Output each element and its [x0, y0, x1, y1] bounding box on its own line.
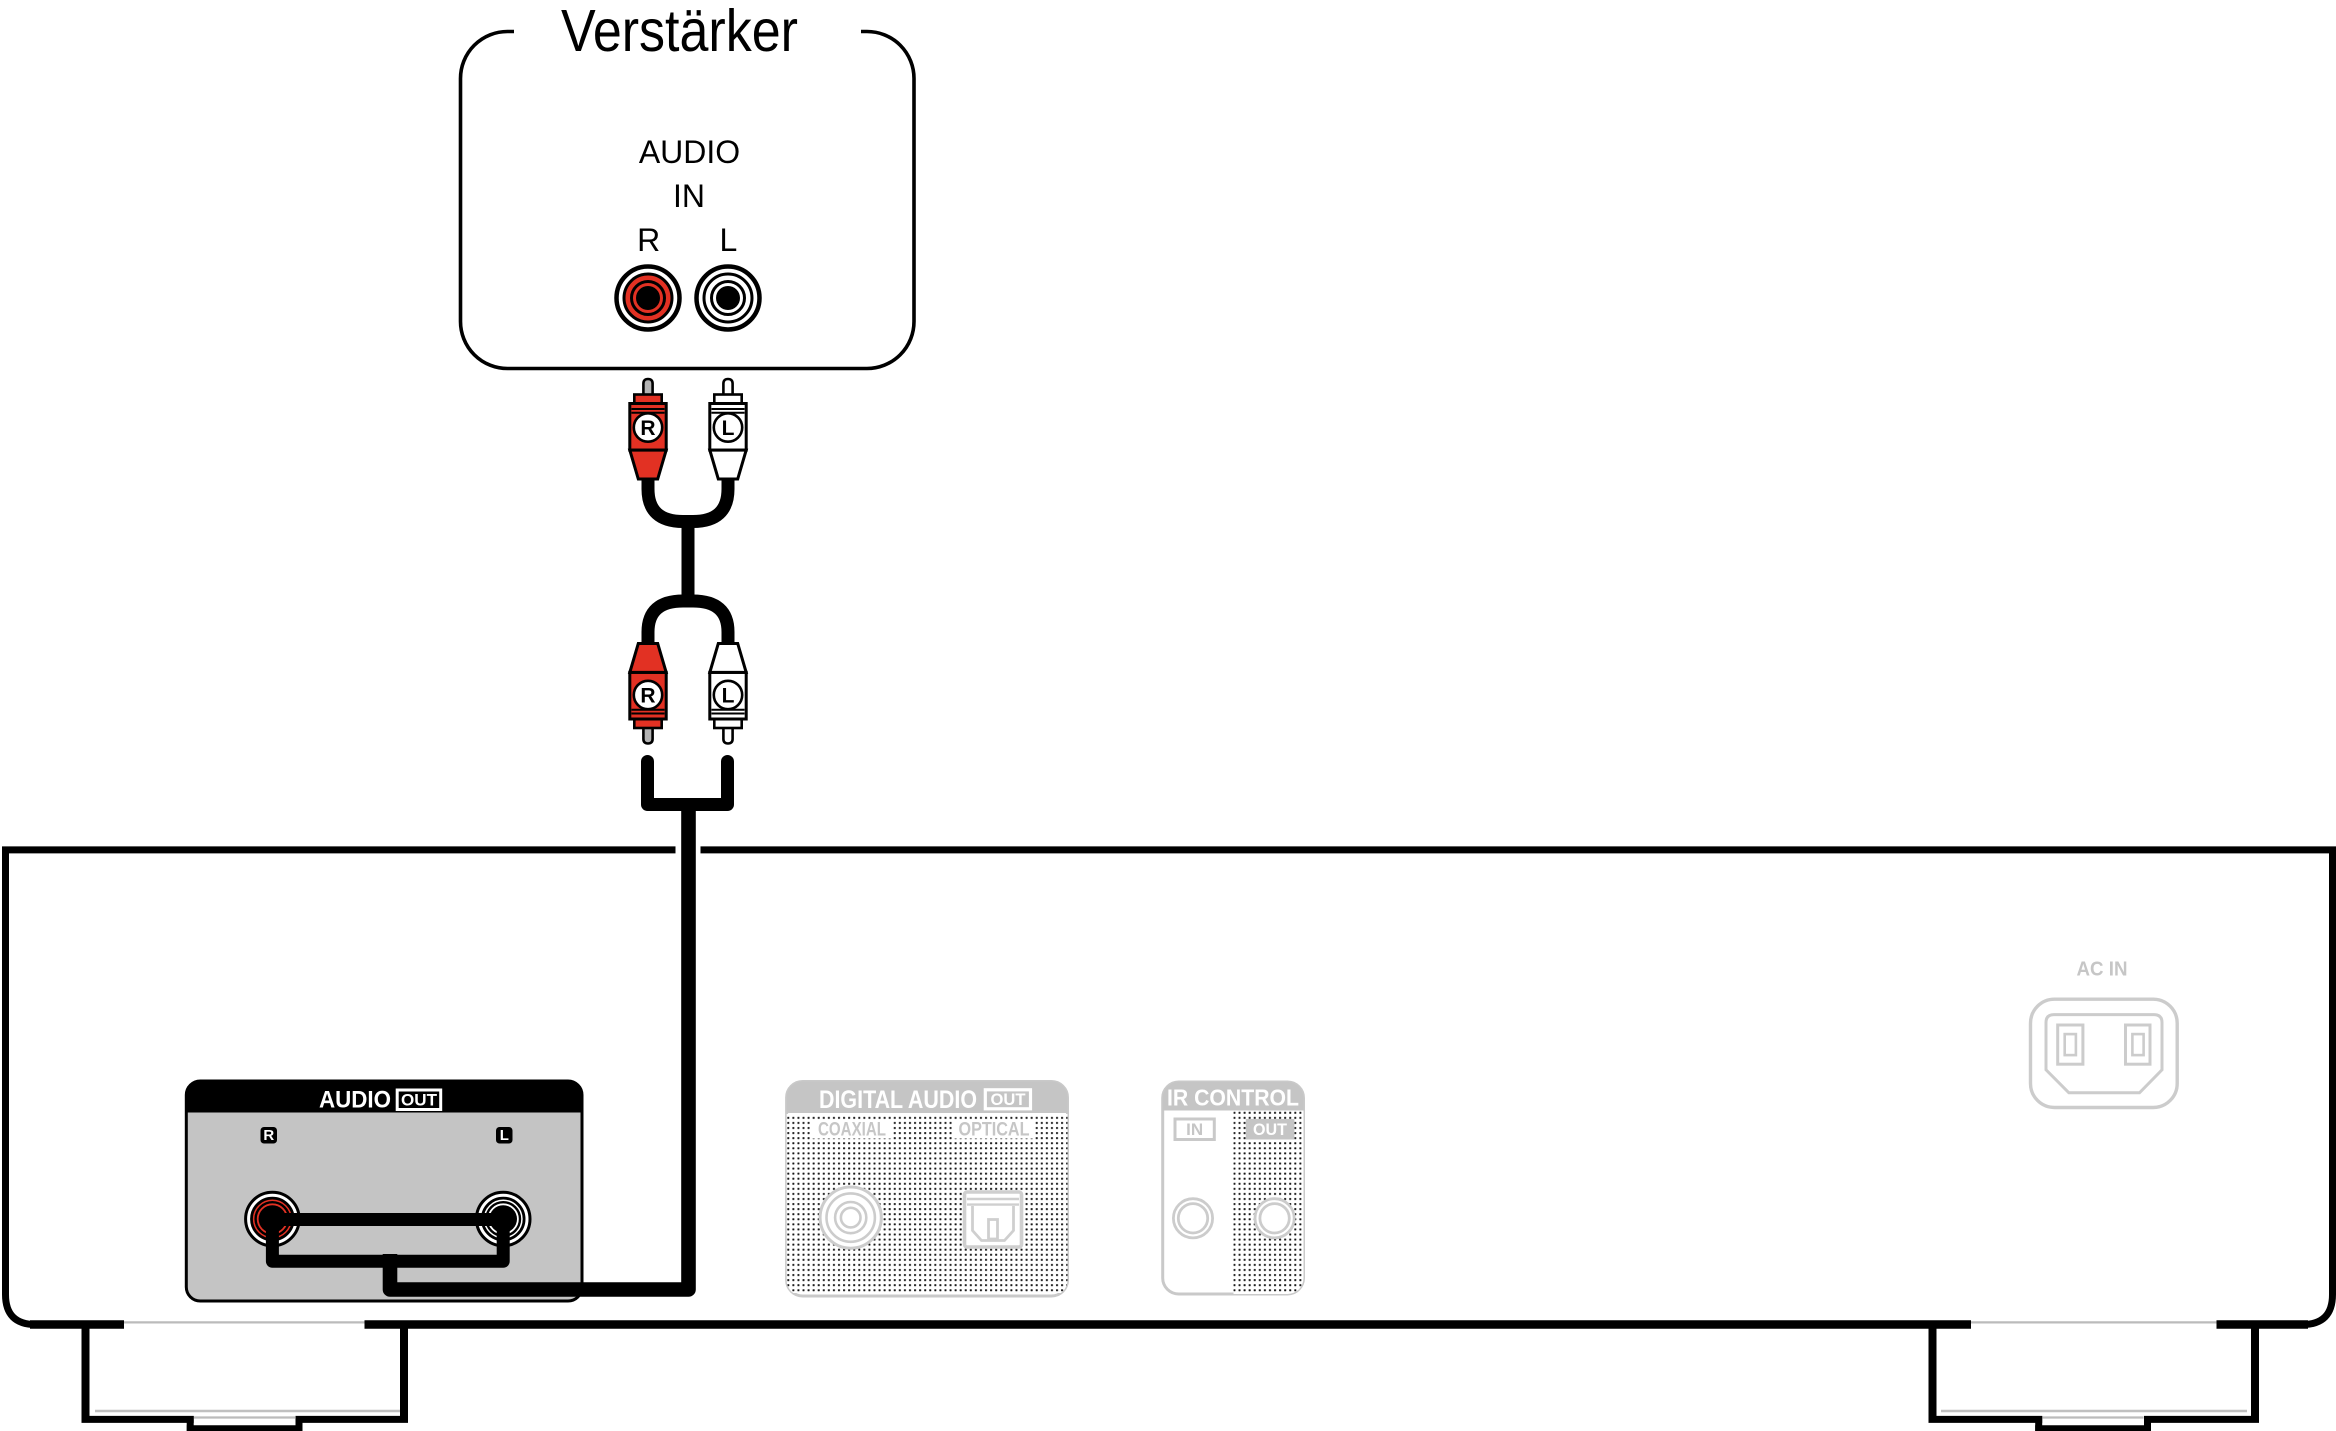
svg-text:OUT: OUT [1253, 1120, 1288, 1139]
svg-text:OPTICAL: OPTICAL [959, 1120, 1030, 1141]
svg-text:R: R [263, 1127, 274, 1144]
svg-text:R: R [637, 222, 660, 258]
svg-text:L: L [722, 685, 735, 708]
svg-text:COAXIAL: COAXIAL [818, 1120, 886, 1141]
svg-text:AUDIO: AUDIO [639, 134, 740, 170]
svg-text:AUDIO: AUDIO [319, 1087, 391, 1114]
svg-text:R: R [640, 685, 655, 708]
svg-text:L: L [720, 222, 738, 258]
svg-text:IN: IN [1186, 1120, 1203, 1139]
svg-text:R: R [640, 417, 655, 440]
svg-text:IR CONTROL: IR CONTROL [1167, 1085, 1299, 1111]
svg-text:L: L [722, 417, 735, 440]
svg-text:L: L [500, 1127, 509, 1144]
svg-text:IN: IN [673, 178, 705, 214]
svg-text:OUT: OUT [991, 1090, 1027, 1109]
svg-text:DIGITAL AUDIO: DIGITAL AUDIO [819, 1086, 977, 1114]
svg-text:Verstärker: Verstärker [561, 0, 798, 64]
svg-text:AC IN: AC IN [2077, 959, 2128, 981]
svg-text:OUT: OUT [401, 1091, 438, 1110]
